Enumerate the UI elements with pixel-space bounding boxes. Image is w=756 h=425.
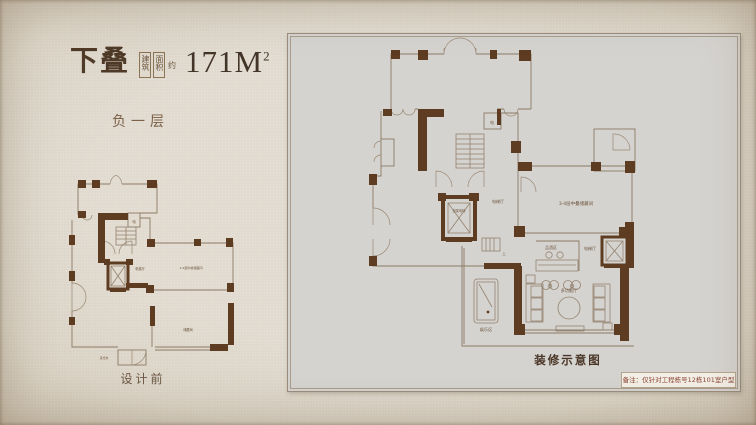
before-lightwell-label: 采光井 xyxy=(100,356,109,360)
before-electric-label: 电 xyxy=(132,219,136,224)
before-stairs xyxy=(116,227,136,245)
round-table xyxy=(558,297,580,319)
product-type-title: 下叠 xyxy=(70,46,130,77)
floor-plan-furnished: 电 担架电梯 电梯厅 3-4层中叠储藏间 品酒区 电梯厅 上 多功能厅 娱乐区 xyxy=(288,34,740,391)
bar-counter-and-stools xyxy=(536,252,578,271)
area-prefix-col2: 面积 xyxy=(153,52,165,78)
multi-function-hall-label: 多功能厅 xyxy=(561,287,578,294)
floor-plan-before: 电 电梯厅 3-4层中叠储藏间 储藏间 采光井 xyxy=(60,175,240,370)
before-plan-caption: 设计前 xyxy=(98,370,188,387)
disclaimer-note: 备注：仅针对工程栋号12栋101室户型 xyxy=(621,372,736,388)
recreation-area-label: 娱乐区 xyxy=(480,326,493,333)
before-storage-label: 储藏间 xyxy=(183,327,193,332)
page-background: 下叠 建筑 面积 约 171M2 负一层 xyxy=(0,0,756,425)
billiard-table xyxy=(474,279,498,323)
wine-area-label: 品酒区 xyxy=(545,244,557,250)
area-value: 171M2 xyxy=(185,46,271,77)
sofa-left xyxy=(526,275,543,322)
elevator-hall-left-label: 电梯厅 xyxy=(492,198,504,204)
stretcher-elevator-label: 担架电梯 xyxy=(453,208,467,213)
after-secondary-stairs xyxy=(482,238,500,251)
electric-closet-label: 电 xyxy=(490,119,494,125)
area-superscript: 2 xyxy=(263,49,271,64)
before-elevator-shaft xyxy=(108,263,128,292)
before-wall-piers xyxy=(69,180,234,351)
before-mid-storage-label: 3-4层中叠储藏间 xyxy=(180,265,203,270)
after-main-stairs xyxy=(456,134,484,168)
elevator-hall-right-label: 电梯厅 xyxy=(584,245,596,251)
stairs-up-label: 上 xyxy=(502,251,506,256)
before-walls xyxy=(72,175,233,365)
furnished-plan-panel: 电 担架电梯 电梯厅 3-4层中叠储藏间 品酒区 电梯厅 上 多功能厅 娱乐区 … xyxy=(287,33,741,392)
after-walls xyxy=(373,38,635,346)
mid-storage-label: 3-4层中叠储藏间 xyxy=(559,200,594,207)
area-approx-char: 约 xyxy=(168,60,176,71)
stretcher-elevator-shaft xyxy=(443,197,475,242)
sofa-right xyxy=(593,284,612,330)
floor-level-label: 负一层 xyxy=(112,111,169,131)
area-prefix-col1: 建筑 xyxy=(139,52,151,78)
before-elevator-hall-label: 电梯厅 xyxy=(135,266,145,271)
area-prefix-box: 建筑 面积 约 xyxy=(139,52,176,78)
furnished-plan-caption: 装修示意图 xyxy=(501,352,635,368)
title-block: 下叠 建筑 面积 约 171M2 xyxy=(70,46,271,78)
second-elevator-shaft xyxy=(602,237,627,268)
